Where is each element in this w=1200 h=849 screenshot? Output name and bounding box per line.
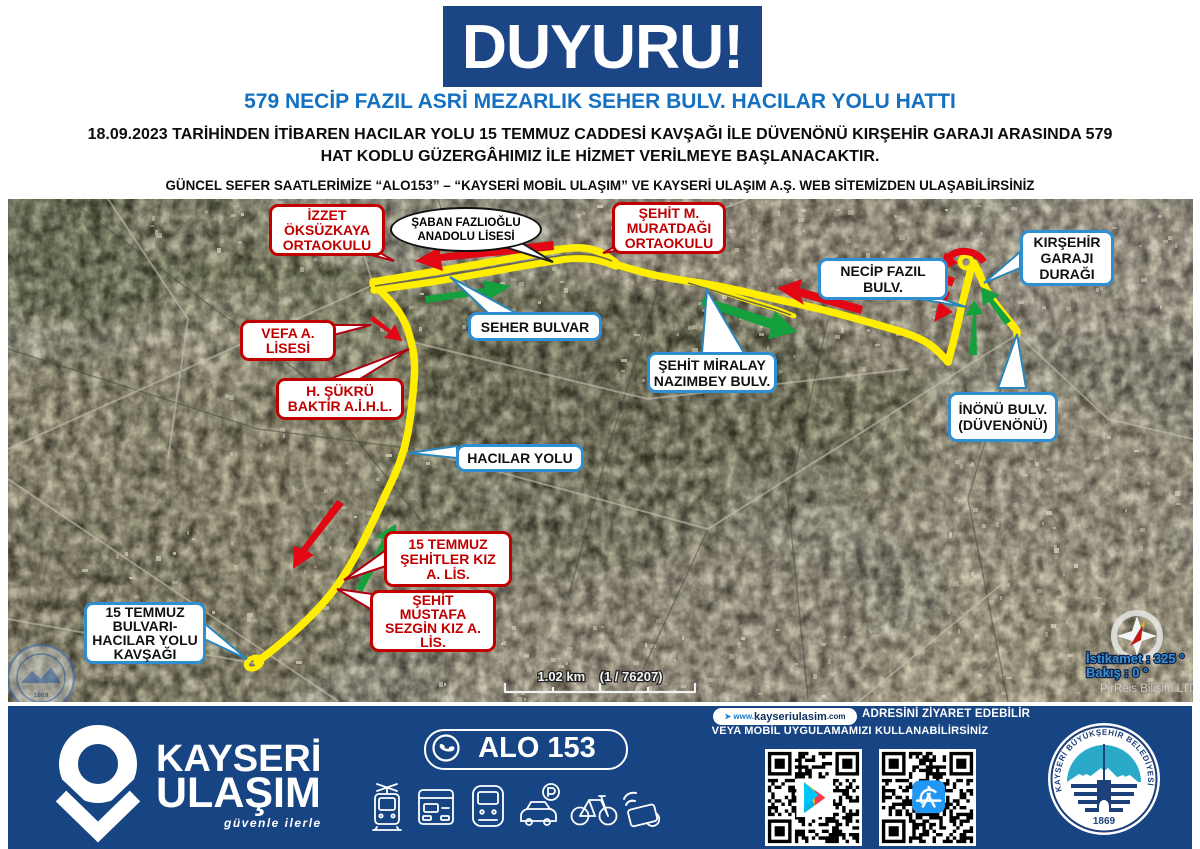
svg-text:İstikamet : 325 °: İstikamet : 325 ° (1086, 651, 1184, 666)
svg-text:1.02 km (1 / 76207): 1.02 km (1 / 76207) (537, 669, 662, 684)
svg-text:1869: 1869 (1093, 816, 1116, 827)
svg-text:1869: 1869 (34, 692, 49, 699)
svg-text:PirReis Bilişim LTD: PirReis Bilişim LTD (1100, 683, 1193, 695)
svg-text:Bakış : 0 °: Bakış : 0 ° (1086, 665, 1148, 680)
